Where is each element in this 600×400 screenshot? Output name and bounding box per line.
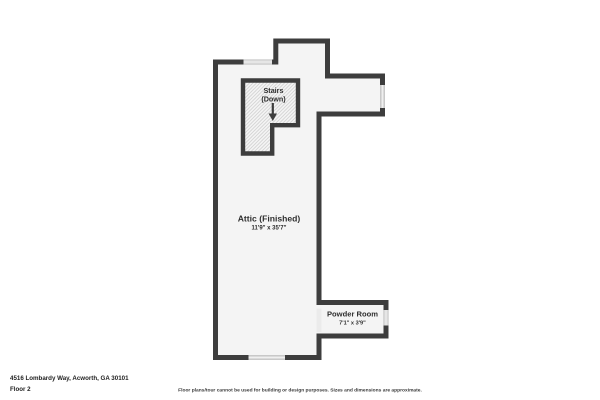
- window-top-wall: [244, 60, 273, 65]
- doorway-opening: [317, 309, 322, 333]
- property-address: 4516 Lombardy Way, Acworth, GA 30101: [10, 375, 129, 382]
- window-powder-room-wall: [384, 310, 389, 326]
- floorplan-svg: Stairs (Down) Attic (Finished) 11'9" x 3…: [0, 0, 600, 400]
- floorplan-page: Stairs (Down) Attic (Finished) 11'9" x 3…: [0, 0, 600, 400]
- floor-label: Floor 2: [10, 386, 31, 393]
- stairs-sublabel: (Down): [261, 95, 286, 104]
- attic-label: Attic (Finished): [238, 214, 301, 224]
- disclaimer-text: Floor plans/tour cannot be used for buil…: [178, 388, 422, 394]
- powder-room-label: Powder Room: [327, 310, 378, 319]
- attic-dimensions: 11'9" x 35'7": [252, 226, 287, 232]
- window-right-wing-wall: [380, 85, 385, 108]
- window-bottom-wall: [249, 355, 286, 360]
- powder-room-dimensions: 7'1" x 3'9": [339, 321, 366, 327]
